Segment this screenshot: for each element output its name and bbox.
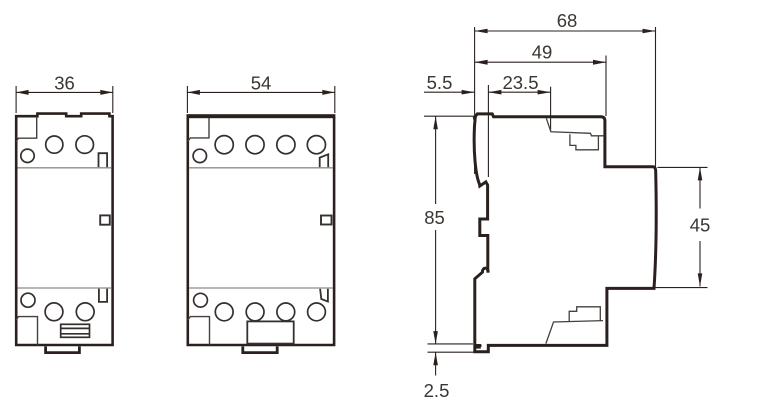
svg-text:54: 54 — [251, 73, 272, 94]
svg-text:5.5: 5.5 — [427, 72, 453, 93]
svg-text:68: 68 — [557, 10, 578, 31]
svg-text:2.5: 2.5 — [424, 380, 450, 401]
svg-text:36: 36 — [54, 73, 75, 94]
svg-text:49: 49 — [532, 41, 553, 62]
svg-text:45: 45 — [690, 214, 711, 235]
svg-text:23.5: 23.5 — [502, 72, 538, 93]
svg-text:85: 85 — [424, 207, 445, 228]
